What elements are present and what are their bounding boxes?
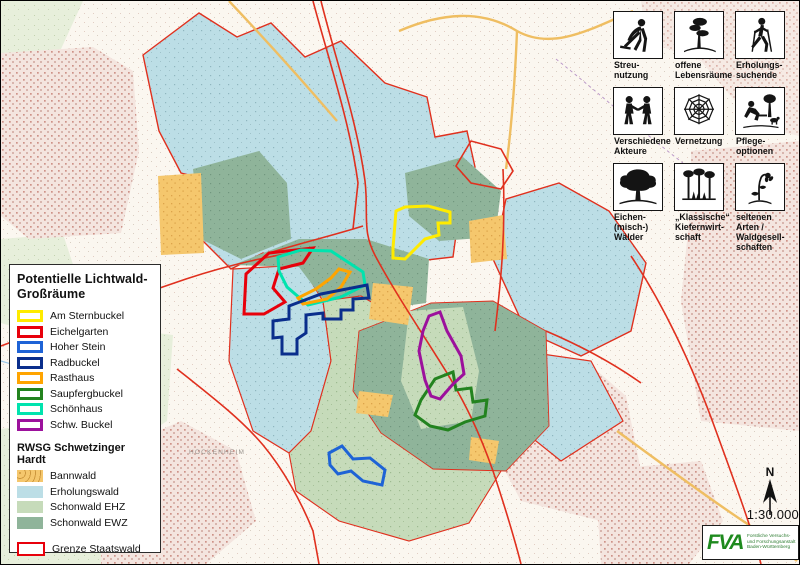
icon-panel: Streu-nutzung offeneLebensräume [613, 11, 799, 255]
legend-item-eichelgarten: Eichelgarten [17, 325, 153, 339]
legend-label: Radbuckel [50, 357, 100, 369]
legend-item-am-sternbuckel: Am Sternbuckel [17, 310, 153, 324]
north-label: N [753, 465, 787, 479]
icon-cell-streunutzung: Streu-nutzung [613, 11, 671, 85]
swatch-erholungswald [17, 486, 43, 498]
fva-logo-abbr: FVA [707, 532, 743, 553]
icon-cell-verschiedene-akteure: VerschiedeneAkteure [613, 87, 671, 161]
erholungssuchende-icon [735, 11, 785, 59]
icon-label: Eichen-(misch-)Wälder [614, 213, 671, 243]
streunutzung-icon [613, 11, 663, 59]
layer-bannwald-3 [369, 283, 413, 325]
icon-cell-pflegeoptionen: Pflege-optionen [735, 87, 793, 161]
eichenmischwaelder-icon [613, 163, 663, 211]
swatch-schonwald-ewz [17, 517, 43, 529]
fva-logo-name: Forstliche Versuchs- und Forschungsansta… [747, 534, 796, 552]
icon-label: Erholungs-suchende [736, 61, 793, 82]
layer-bannwald-4 [356, 391, 393, 417]
icon-cell-eichenwaelder: Eichen-(misch-)Wälder [613, 163, 671, 255]
legend-item-radbuckel: Radbuckel [17, 356, 153, 370]
swatch-schonwald-ehz [17, 501, 43, 513]
legend-item-grenze-staatswald: Grenze Staatswald [17, 543, 153, 557]
legend-title: Potentielle Lichtwald- Großräume [17, 272, 153, 302]
legend-item-rasthaus: Rasthaus [17, 372, 153, 386]
pflegeoptionen-icon [735, 87, 785, 135]
icon-cell-seltene-arten: seltenenArten /Waldgesell-schaften [735, 163, 793, 255]
swatch-bannwald [17, 470, 43, 482]
legend-label: Saupfergbuckel [50, 388, 123, 400]
legend-item-saupfergbuckel: Saupfergbuckel [17, 387, 153, 401]
kiefernwirtschaft-icon [674, 163, 724, 211]
swatch-hoher-stein [17, 341, 43, 353]
icon-label: offeneLebensräume [675, 61, 732, 82]
legend-label: Rasthaus [50, 372, 94, 384]
urban-topleft [1, 47, 139, 239]
icon-cell-vernetzung: Vernetzung [674, 87, 732, 161]
legend-label: Schonwald EWZ [50, 517, 128, 529]
icon-label: VerschiedeneAkteure [614, 137, 671, 158]
legend-item-schonwald-ewz: Schonwald EWZ [17, 516, 153, 530]
legend-label: Hoher Stein [50, 341, 105, 353]
town-label: HOCKENHEIM [189, 449, 245, 456]
icon-cell-offene-lebensraeume: offeneLebensräume [674, 11, 732, 85]
icon-label: Pflege-optionen [736, 137, 793, 158]
icon-cell-erholungssuchende: Erholungs-suchende [735, 11, 793, 85]
legend-item-hoher-stein: Hoher Stein [17, 341, 153, 355]
legend-label: Bannwald [50, 470, 96, 482]
legend-box: Potentielle Lichtwald- Großräume Am Ster… [9, 264, 161, 553]
legend-label: Grenze Staatswald [52, 543, 141, 555]
icon-cell-kiefernwirtschaft: „Klassische“Kiefernwirt-schaft [674, 163, 732, 255]
swatch-eichelgarten [17, 326, 43, 338]
offene-lebensraeume-icon [674, 11, 724, 59]
legend-label: Erholungswald [50, 486, 119, 498]
verschiedene-akteure-icon [613, 87, 663, 135]
legend-label: Am Sternbuckel [50, 310, 124, 322]
legend-section-title: RWSG Schwetzinger Hardt [17, 442, 153, 466]
layer-bannwald-5 [469, 437, 499, 464]
scale-text: 1:30.000 [729, 507, 799, 522]
vernetzung-icon [674, 87, 724, 135]
map-sheet: HOCKENHEIM Potentielle Lichtwald- Großrä… [0, 0, 800, 565]
legend-label: Schönhaus [50, 403, 103, 415]
legend-item-schoenhaus: Schönhaus [17, 403, 153, 417]
icon-label: Vernetzung [675, 137, 732, 158]
legend-item-bannwald: Bannwald [17, 470, 153, 484]
legend-label: Schonwald EHZ [50, 501, 125, 513]
swatch-am-sternbuckel [17, 310, 43, 322]
legend-item-schw-buckel: Schw. Buckel [17, 418, 153, 432]
swatch-saupfergbuckel [17, 388, 43, 400]
icon-label: „Klassische“Kiefernwirt-schaft [675, 213, 732, 243]
fva-logo: FVA Forstliche Versuchs- und Forschungsa… [702, 525, 799, 560]
swatch-radbuckel [17, 357, 43, 369]
icon-label: Streu-nutzung [614, 61, 671, 82]
swatch-grenze-staatswald [17, 542, 45, 556]
swatch-schoenhaus [17, 403, 43, 415]
legend-label: Schw. Buckel [50, 419, 112, 431]
legend-item-erholungswald: Erholungswald [17, 485, 153, 499]
layer-bannwald-2 [469, 215, 507, 263]
icon-label: seltenenArten /Waldgesell-schaften [736, 213, 793, 252]
swatch-schw-buckel [17, 419, 43, 431]
seltene-arten-icon [735, 163, 785, 211]
swatch-rasthaus [17, 372, 43, 384]
legend-item-schonwald-ehz: Schonwald EHZ [17, 501, 153, 515]
layer-bannwald-1 [158, 173, 204, 255]
legend-label: Eichelgarten [50, 326, 108, 338]
